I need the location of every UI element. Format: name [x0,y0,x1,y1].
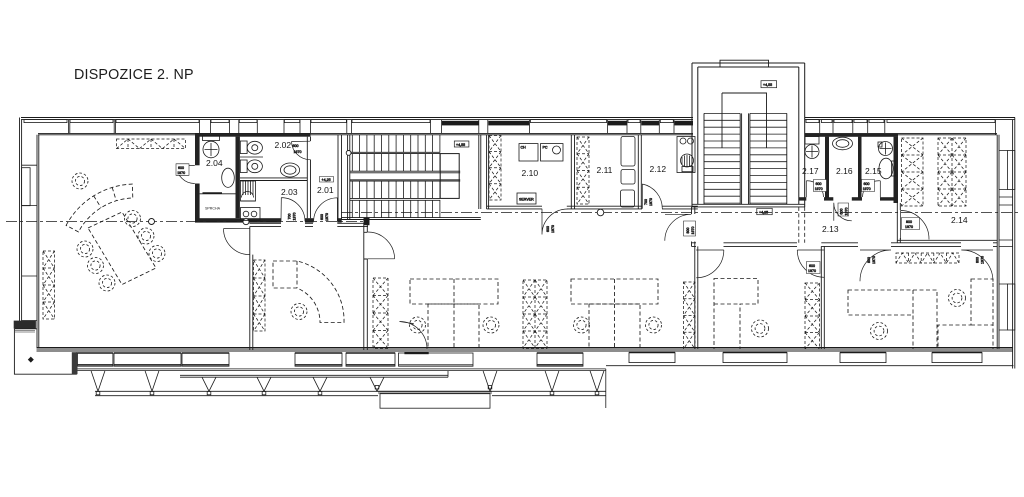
svg-text:CH: CH [521,146,527,150]
svg-text:PC: PC [543,146,548,150]
svg-text:2.01: 2.01 [317,185,334,195]
svg-text:1970: 1970 [294,150,302,154]
svg-text:2.16: 2.16 [836,166,853,176]
svg-text:1970: 1970 [981,256,985,264]
svg-text:600: 600 [816,182,822,186]
svg-text:1970: 1970 [177,171,185,175]
svg-text:1970: 1970 [845,208,849,216]
svg-text:800: 800 [867,257,871,263]
svg-text:600: 600 [293,144,299,148]
svg-text:1970: 1970 [551,225,555,233]
svg-text:600: 600 [320,214,324,220]
svg-text:700: 700 [288,214,292,220]
svg-text:800: 800 [906,220,912,224]
svg-text:1970: 1970 [649,198,653,206]
svg-text:2.15: 2.15 [865,166,882,176]
svg-text:600: 600 [546,226,550,232]
svg-text:800: 800 [976,257,980,263]
svg-text:1970: 1970 [863,187,871,191]
svg-text:+4,55: +4,55 [456,143,465,147]
svg-text:SERVER: SERVER [519,198,534,202]
svg-text:2.13: 2.13 [822,224,839,234]
svg-text:+4,25: +4,25 [322,178,331,182]
svg-text:+4,55: +4,55 [763,83,772,87]
svg-text:2.04: 2.04 [206,158,223,168]
svg-text:600: 600 [864,182,870,186]
svg-text:600: 600 [809,264,815,268]
svg-text:SPRCHA: SPRCHA [205,207,221,211]
svg-text:2.14: 2.14 [951,215,968,225]
svg-text:1970: 1970 [808,269,816,273]
svg-text:800: 800 [686,228,690,234]
svg-text:600: 600 [840,209,844,215]
svg-text:2.12: 2.12 [650,164,667,174]
svg-text:1970: 1970 [293,213,297,221]
svg-text:2.10: 2.10 [522,168,539,178]
svg-text:+4,25: +4,25 [759,211,768,215]
svg-text:600: 600 [178,166,184,170]
svg-text:DISPOZICE 2. NP: DISPOZICE 2. NP [74,67,194,83]
svg-text:1970: 1970 [325,213,329,221]
svg-text:2.02: 2.02 [275,140,292,150]
svg-text:2.03: 2.03 [281,187,298,197]
svg-text:2.11: 2.11 [597,165,613,175]
svg-text:1970: 1970 [872,256,876,264]
svg-text:700: 700 [644,199,648,205]
svg-text:2.17: 2.17 [802,166,819,176]
svg-text:1970: 1970 [691,227,695,235]
svg-text:1970: 1970 [815,187,823,191]
svg-text:1970: 1970 [905,225,913,229]
